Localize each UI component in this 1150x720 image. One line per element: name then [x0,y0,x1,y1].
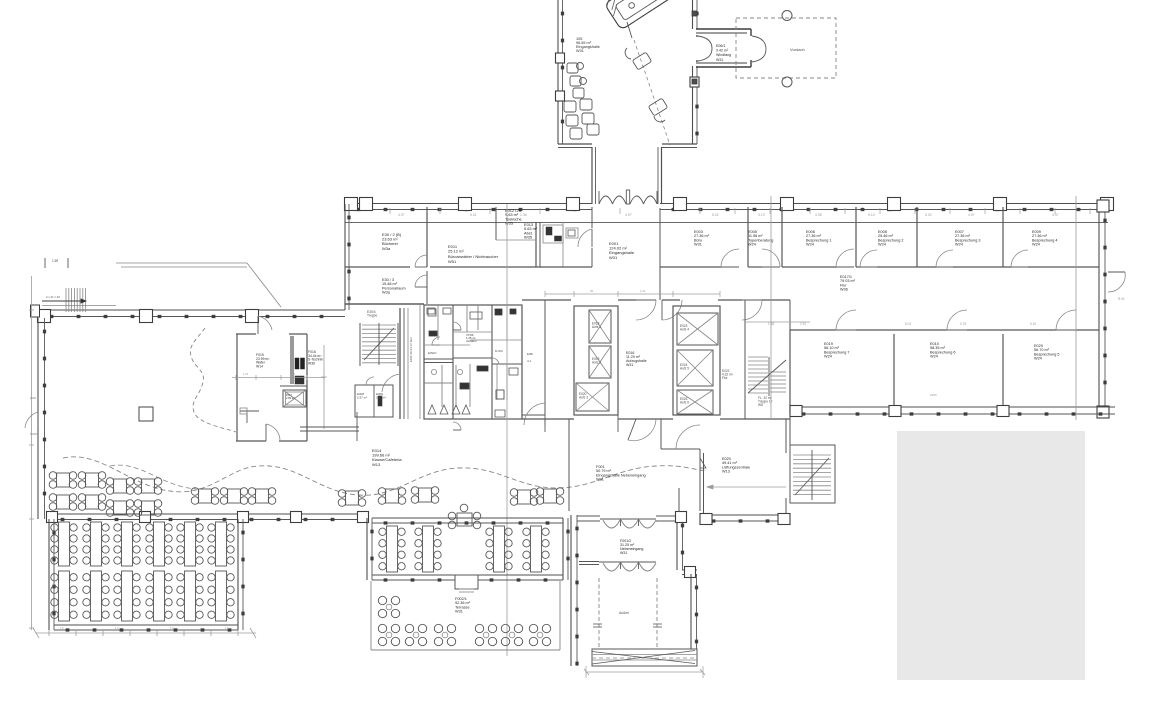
svg-text:4.97: 4.97 [625,213,632,217]
svg-text:W31: W31 [609,255,618,260]
svg-text:Aufz 4: Aufz 4 [680,327,689,331]
svg-text:5.01: 5.01 [470,213,477,217]
svg-text:1.5: 1.5 [115,626,119,630]
svg-text:W35: W35 [524,235,532,240]
svg-text:35: 35 [590,289,594,293]
svg-text:2.97 m²: 2.97 m² [376,395,386,399]
svg-text:4.97: 4.97 [968,213,975,217]
svg-text:1.59: 1.59 [52,259,58,263]
svg-text:1.91: 1.91 [800,322,806,326]
svg-text:4.98: 4.98 [815,213,822,217]
svg-text:W3a: W3a [382,291,391,295]
svg-text:2.89 m²: 2.89 m² [286,396,295,400]
svg-text:W31: W31 [716,58,723,62]
svg-text:W13: W13 [722,470,730,474]
svg-text:E015 40.24 m² Flur: E015 40.24 m² Flur [409,337,413,362]
svg-text:Treppe: Treppe [367,314,377,318]
svg-text:5.01: 5.01 [905,322,911,326]
svg-text:W31: W31 [596,478,604,482]
svg-text:Außen: Außen [619,611,629,615]
svg-text:2 x 41 = 62: 2 x 41 = 62 [46,295,60,299]
svg-text:W24: W24 [878,243,886,247]
svg-text:W3a: W3a [382,246,391,251]
svg-text:W31: W31 [455,610,463,614]
svg-text:W8: W8 [758,403,763,407]
svg-text:0.76: 0.76 [960,322,966,326]
svg-text:Aufz 6: Aufz 6 [680,400,689,404]
svg-text:1.5: 1.5 [60,626,64,630]
svg-text:W24: W24 [806,243,814,247]
svg-text:E0B: E0B [527,352,533,356]
svg-text:Aufz 1: Aufz 1 [592,325,601,329]
svg-text:W24: W24 [824,355,832,359]
svg-text:9.42 m²: 9.42 m² [716,49,729,53]
svg-text:W31: W31 [626,363,633,367]
svg-text:4.97: 4.97 [1052,213,1059,217]
svg-text:5.02: 5.02 [712,213,719,217]
svg-text:W14: W14 [256,364,263,368]
svg-text:W51: W51 [448,259,457,264]
svg-text:Windfang: Windfang [716,53,731,57]
svg-text:W24: W24 [930,355,938,359]
svg-text:W31: W31 [620,551,627,555]
svg-text:R.W.: R.W. [1118,297,1125,301]
svg-text:W35: W35 [505,221,513,226]
svg-text:1.5: 1.5 [170,626,174,630]
svg-text:E0WC: E0WC [428,351,438,355]
svg-text:1.5: 1.5 [225,626,229,630]
svg-text:1.25: 1.25 [243,372,249,376]
svg-text:W36: W36 [840,288,848,292]
svg-text:W24: W24 [748,243,756,247]
svg-text:Flur: Flur [722,376,728,380]
svg-text:1.91: 1.91 [640,289,646,293]
svg-text:E06/1: E06/1 [716,44,725,48]
svg-text:2.96: 2.96 [290,372,296,376]
svg-text:Aufz 2: Aufz 2 [592,360,601,364]
svg-text:Vordach: Vordach [790,47,805,52]
svg-text:25.12 m²: 25.12 m² [448,249,464,254]
svg-text:W31: W31 [576,49,584,53]
svg-text:2.97 m²: 2.97 m² [357,395,367,399]
svg-text:4.97: 4.97 [398,213,405,217]
svg-text:3.19: 3.19 [758,213,765,217]
svg-text:D-WC: D-WC [495,349,504,353]
svg-text:5.02: 5.02 [925,213,932,217]
svg-text:4.1: 4.1 [527,359,532,363]
svg-text:W24: W24 [1032,243,1040,247]
svg-text:W31: W31 [694,243,702,247]
svg-text:2266: 2266 [930,393,937,397]
svg-text:W13: W13 [372,462,381,467]
svg-text:W24: W24 [1034,357,1042,361]
svg-text:5.10: 5.10 [868,213,875,217]
svg-text:Aufz 5: Aufz 5 [680,366,689,370]
svg-text:W24: W24 [955,243,963,247]
svg-text:W36: W36 [308,361,315,365]
svg-text:5.10: 5.10 [1030,322,1036,326]
svg-text:Aufz 3: Aufz 3 [579,395,588,399]
